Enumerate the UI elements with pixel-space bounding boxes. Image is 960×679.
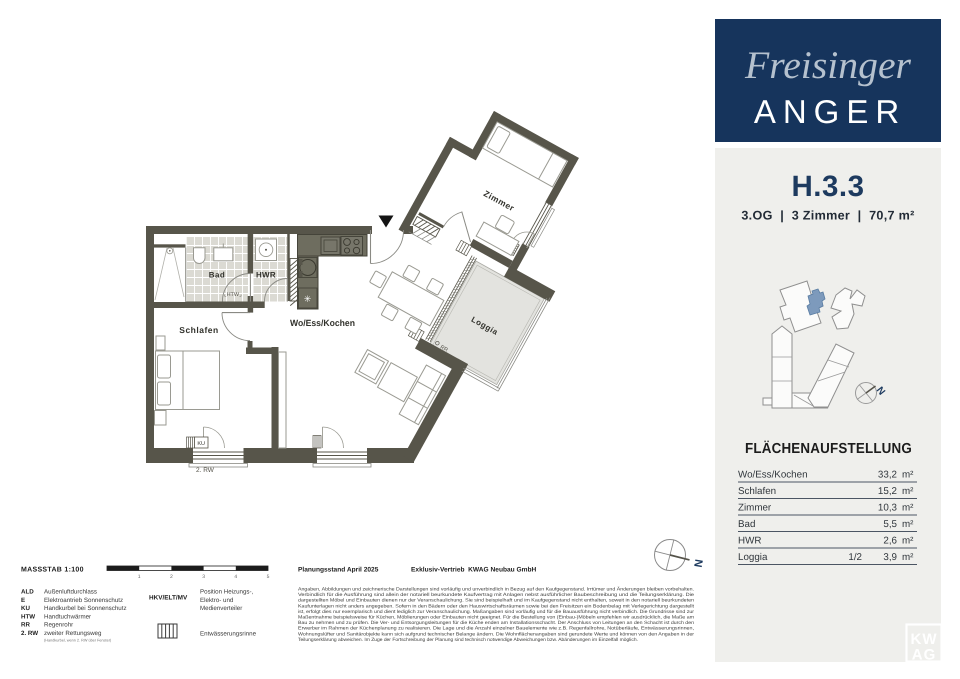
svg-text:✳: ✳ [304, 294, 312, 304]
svg-text:Elektroantrieb Sonnenschutz: Elektroantrieb Sonnenschutz [44, 597, 123, 604]
svg-text:1/2: 1/2 [848, 552, 862, 563]
svg-text:2. RW: 2. RW [21, 630, 38, 637]
svg-text:Bau zu nehmen und zu prüfen. D: Bau zu nehmen und zu prüfen. Die Ver- un… [298, 620, 694, 625]
svg-text:Wo/Ess/Kochen: Wo/Ess/Kochen [738, 470, 808, 481]
svg-text:E: E [21, 597, 25, 604]
svg-text:FLÄCHENAUFSTELLUNG: FLÄCHENAUFSTELLUNG [745, 440, 912, 457]
svg-text:Elektro- und: Elektro- und [200, 597, 234, 604]
svg-text:m²: m² [902, 536, 914, 547]
svg-text:1: 1 [138, 574, 141, 580]
svg-text:m²: m² [902, 552, 914, 563]
svg-text:m²: m² [902, 470, 914, 481]
svg-text:2. RW: 2. RW [196, 467, 215, 474]
svg-text:3.OG | 3 Zimmer | 70,7 m²: 3.OG | 3 Zimmer | 70,7 m² [741, 209, 914, 223]
svg-text:Maßentnahme beispielsweise für: Maßentnahme beispielsweise für Küchen, M… [298, 615, 694, 620]
svg-text:(Handkurbel, wenn 2. RW über F: (Handkurbel, wenn 2. RW über Fenster) [44, 639, 112, 643]
svg-text:Wo/Ess/Kochen: Wo/Ess/Kochen [290, 318, 355, 328]
svg-text:Zimmer: Zimmer [738, 503, 772, 514]
svg-text:MASSSTAB 1:100: MASSSTAB 1:100 [21, 567, 84, 574]
svg-text:2,6: 2,6 [883, 536, 897, 547]
svg-text:zweiter Rettungsweg: zweiter Rettungsweg [44, 630, 102, 637]
svg-text:33,2: 33,2 [878, 470, 897, 481]
svg-text:Medienverteiler: Medienverteiler [200, 605, 242, 612]
svg-text:m²: m² [902, 486, 914, 497]
svg-text:AG: AG [912, 647, 937, 664]
svg-text:Kaufunterlagen nicht anders an: Kaufunterlagen nicht anders angegeben. S… [298, 603, 695, 608]
svg-text:ANGER: ANGER [754, 93, 906, 130]
svg-text:RR: RR [21, 622, 30, 629]
svg-text:HWR: HWR [738, 536, 761, 547]
svg-text:KU: KU [197, 441, 205, 447]
svg-text:Außenluftdurchlass: Außenluftdurchlass [44, 589, 97, 596]
svg-text:5: 5 [267, 574, 270, 580]
svg-text:Position Heizungs-,: Position Heizungs-, [200, 589, 254, 596]
svg-text:Regenrohr: Regenrohr [44, 622, 73, 629]
svg-text:Teilungserklärung abweichen. I: Teilungserklärung abweichen. Im Zuge der… [298, 637, 638, 642]
svg-text:10,3: 10,3 [878, 503, 898, 514]
svg-text:5,5: 5,5 [883, 519, 897, 530]
svg-text:3: 3 [202, 574, 205, 580]
svg-text:Freisinger: Freisinger [744, 44, 912, 87]
svg-text:Verbindlich für die Ausführung: Verbindlich für die Ausführung sind alle… [298, 592, 694, 597]
svg-text:2: 2 [170, 574, 173, 580]
svg-text:Angaben, Abbildungen und zeich: Angaben, Abbildungen und zeichnerische D… [298, 587, 694, 592]
svg-text:15,2: 15,2 [878, 486, 897, 497]
svg-text:H.3.3: H.3.3 [791, 170, 864, 203]
svg-text:HKV/ELT/MV: HKV/ELT/MV [149, 595, 188, 602]
svg-text:m²: m² [902, 519, 914, 530]
svg-text:KU: KU [21, 605, 30, 612]
svg-text:HTW: HTW [21, 613, 35, 620]
svg-text:Handtuchwärmer: Handtuchwärmer [44, 613, 91, 620]
svg-text:dargestellten Möbel und Einbau: dargestellten Möbel und Einbauten dienen… [298, 598, 694, 603]
svg-text:Loggia: Loggia [738, 552, 768, 563]
svg-text:ist, erfolgt dies nur exemplar: ist, erfolgt dies nur exemplarisch und d… [298, 609, 694, 614]
svg-text:ALD: ALD [21, 589, 34, 596]
svg-text:m²: m² [902, 503, 914, 514]
svg-text:Erwerber im Rahmen der Küchenp: Erwerber im Rahmen der Küchenplanung zu … [298, 626, 694, 631]
svg-text:Bad: Bad [738, 519, 755, 530]
svg-text:Exklusiv-Vertrieb KWAG Neubau: Exklusiv-Vertrieb KWAG Neubau GmbH [411, 567, 537, 574]
svg-text:4: 4 [234, 574, 237, 580]
svg-text:⌞HTW⌟: ⌞HTW⌟ [224, 292, 242, 298]
svg-text:Wohnungslüfter und Sanitärobje: Wohnungslüfter und Sanitärobjekte kann s… [298, 631, 694, 636]
svg-text:Planungsstand April 2025: Planungsstand April 2025 [298, 567, 379, 574]
svg-text:Entwässerungsrinne: Entwässerungsrinne [200, 631, 257, 638]
svg-text:Bad: Bad [209, 271, 226, 280]
svg-text:Schlafen: Schlafen [179, 325, 218, 335]
svg-text:Schlafen: Schlafen [738, 486, 776, 497]
svg-text:HWR: HWR [256, 271, 276, 280]
svg-text:KW: KW [911, 631, 938, 648]
svg-text:Handkurbel bei Sonnenschutz: Handkurbel bei Sonnenschutz [44, 605, 127, 612]
svg-text:3,9: 3,9 [883, 552, 897, 563]
